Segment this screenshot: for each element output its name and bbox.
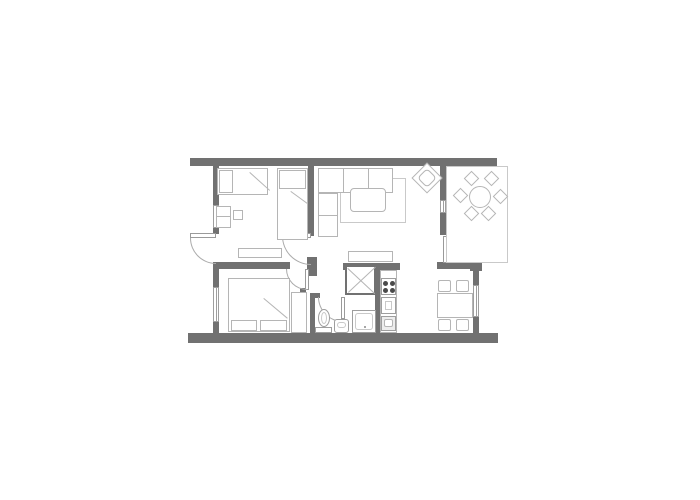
wall-left-3 <box>213 267 219 287</box>
shower-drain <box>364 326 366 328</box>
dining-table <box>437 293 473 318</box>
pillow <box>279 170 306 189</box>
toilet-seat <box>321 312 327 324</box>
floor-plan <box>0 0 700 500</box>
sink-basin <box>384 319 393 327</box>
toilet-bowl <box>318 309 330 327</box>
oven-unit <box>381 297 396 314</box>
pillow <box>231 320 257 331</box>
low-dresser <box>238 248 282 258</box>
window-pane <box>443 201 444 212</box>
dining-chair <box>438 319 451 331</box>
washbasin <box>334 319 349 333</box>
washbasin-bowl <box>337 322 346 328</box>
wall-top <box>190 158 497 166</box>
wardrobe <box>291 292 307 333</box>
window-pane <box>476 286 477 316</box>
armchair <box>411 162 442 193</box>
stove-burner <box>390 281 395 286</box>
pillow <box>219 170 233 193</box>
sofa-cushion-divider <box>343 169 344 192</box>
dining-chair <box>456 319 469 331</box>
coffee-table <box>350 188 386 212</box>
window-pane <box>216 288 217 321</box>
wall-dining-right-2 <box>473 317 479 333</box>
oven-door <box>385 301 392 310</box>
armchair-seat <box>417 168 437 188</box>
wall-bedroom1-right <box>308 166 314 236</box>
dining-chair <box>456 280 469 292</box>
wall-left-4 <box>213 322 219 338</box>
stool <box>233 210 243 220</box>
stove-burner <box>390 288 395 293</box>
window-bedroom2 <box>213 287 219 322</box>
shower <box>352 310 376 333</box>
wall-balcony-pier <box>470 262 482 271</box>
stove-burner <box>383 288 388 293</box>
wall-bottom <box>188 333 498 343</box>
sideboard <box>348 251 393 262</box>
kitchen-sink-unit <box>381 316 396 331</box>
wall-middle-left <box>213 262 290 269</box>
desk-divider <box>217 216 230 217</box>
window-dining <box>473 285 479 317</box>
door-arc-entrance <box>190 238 216 264</box>
dining-chair <box>438 280 451 292</box>
toilet-tank <box>315 327 332 333</box>
door-arc-bedroom1 <box>282 236 311 265</box>
sofa-cushion-divider <box>319 215 337 216</box>
stove-burner <box>383 281 388 286</box>
desk <box>216 206 231 228</box>
pillow <box>260 320 287 331</box>
